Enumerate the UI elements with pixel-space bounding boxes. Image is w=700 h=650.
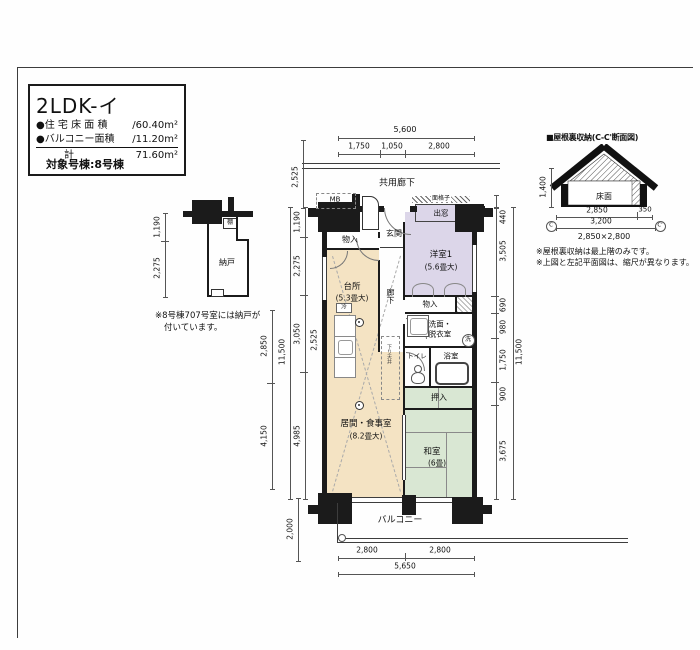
dim-line: [549, 168, 554, 208]
attic-size: 2,850×2,800: [578, 233, 631, 241]
attic-title: ■屋根裏収納(C-C'断面図): [546, 132, 638, 143]
wall-closet-right: [455, 295, 457, 314]
wall-left: [322, 230, 327, 257]
wall-toilet-bath: [429, 348, 431, 388]
attic-note-2: ※上図と左記平面図は、縮尺が異なります。: [536, 257, 694, 268]
storage-wall-rightside: [247, 239, 249, 297]
attic-roof-section: 床面: [548, 144, 660, 210]
shelf-label: 棚: [227, 220, 233, 226]
dim-left-corridor: 2,525: [291, 166, 299, 187]
dim-bottom-seg2: 2,800: [429, 546, 450, 554]
kitchen-label: 台所: [343, 283, 360, 292]
wall-closet-washroom: [405, 312, 472, 314]
closet-fold-door: [412, 283, 434, 297]
counter-divider: [334, 336, 356, 337]
dim-line: [303, 207, 308, 500]
dim-bottom-total: 5,650: [394, 562, 415, 570]
genkan-label: 玄関: [386, 230, 402, 238]
dim-left-seg1: 1,190: [293, 211, 301, 232]
toilet-label: トイレ: [407, 353, 427, 360]
dim-top-total: 5,600: [394, 126, 417, 134]
column-nub: [484, 208, 493, 217]
balcony-area-value: /11.20m²: [132, 133, 178, 147]
dim-line: [338, 136, 475, 141]
dimension-tick: [491, 338, 499, 339]
dimension-tick: [300, 372, 308, 373]
balcony-label: バルコニー: [378, 517, 423, 526]
dim-left-seg3: 3,050: [293, 323, 301, 344]
storage-room-label: 納戸: [219, 259, 235, 267]
dim-line: [556, 226, 656, 231]
meter-box-label: MB: [330, 197, 341, 204]
gas-outlet-mark: [355, 401, 364, 410]
kitchen-window: [322, 257, 323, 300]
genkan-step: [380, 247, 403, 248]
plan-name: 2LDK-イ: [36, 90, 178, 119]
closet-hatch-area: [457, 297, 472, 312]
dimension-tick: [405, 150, 406, 158]
dim-right-seg5: 900: [499, 387, 507, 401]
storage-wall-top: [183, 211, 253, 217]
dim-balcony-depth: 2,000: [286, 518, 294, 539]
dim-left-total: 11,500: [278, 339, 286, 365]
dim-left-seg2: 2,275: [293, 255, 301, 276]
fridge-label: 冷: [341, 305, 347, 311]
dim-right-seg4: 1,750: [499, 349, 507, 370]
target-building-label: 対象号棟:8号棟: [46, 156, 124, 172]
column-nub: [308, 208, 318, 217]
drain-mark: [338, 534, 346, 542]
dimension-tick: [161, 241, 169, 242]
wall-left: [322, 300, 327, 493]
dimension-tick: [300, 237, 308, 238]
page-border-left: [17, 67, 18, 638]
bedroom-label: 洋室1: [430, 251, 452, 260]
dimension-tick: [405, 553, 406, 561]
balcony-rail: [337, 538, 628, 539]
wall-living-east: [403, 352, 405, 415]
kitchen-size-label: (5.3畳大): [336, 294, 369, 302]
wall-top: [410, 206, 417, 212]
dim-line: [296, 498, 301, 562]
bay-window-label: 出窓: [434, 209, 449, 217]
balcony-rail: [337, 542, 628, 543]
column-bottom-right: [452, 497, 483, 524]
sliding-door: [402, 415, 403, 480]
dim-right-total: 11,500: [515, 339, 523, 365]
closet-fold-door: [444, 283, 466, 297]
dimension-tick: [637, 212, 638, 220]
kitchen-window: [326, 257, 327, 300]
dropped-ceiling-label: 下り天井: [386, 344, 391, 364]
dim-line: [338, 572, 475, 577]
wall-oshiire-washitsu: [405, 408, 472, 410]
attic-w2: 350: [638, 207, 651, 214]
monoire-top-label: 物入: [342, 236, 358, 244]
wall-kitchen-hall: [378, 260, 380, 352]
gas-outlet-mark: [355, 318, 364, 327]
corridor-line: [302, 168, 500, 169]
dim-left-seg4: 4,985: [293, 425, 301, 446]
dimension-tick: [267, 383, 275, 384]
toilet-body: [411, 372, 425, 384]
attic-floor-label: 床面: [596, 191, 612, 201]
dim-right-seg1: 3,505: [499, 240, 507, 261]
section-mark-c2-label: C': [657, 223, 662, 229]
storage-dim-line: [163, 213, 168, 298]
corridor-line: [302, 163, 500, 164]
dim-top-seg1: 1,750: [348, 142, 369, 150]
attic-note-1: ※屋根裏収納は最上階のみです。: [536, 246, 654, 257]
hallway-label: 廊下: [386, 288, 394, 304]
attic-w1: 2,850: [586, 206, 607, 214]
column-bottom-left: [318, 493, 352, 524]
storage-note-line2: 付いています。: [164, 321, 222, 333]
floorplan-sheet: 2LDK-イ ●住 宅 床 面 積/60.40m² ●バルコニー面積/11.20…: [0, 0, 700, 650]
wall-washroom-bottom: [405, 346, 472, 348]
living-label: 居間・食事室: [340, 420, 391, 429]
attic-hatch-right: [632, 181, 640, 205]
dimension-tick: [491, 382, 499, 383]
wall-bath-oshiire: [405, 386, 472, 388]
wall-right: [472, 230, 477, 245]
bedroom-window: [476, 245, 477, 292]
section-mark-c-label: C: [549, 223, 553, 229]
attic-height: 1,400: [539, 176, 547, 197]
dim-line: [301, 140, 306, 209]
dimension-tick: [491, 405, 499, 406]
counter-divider: [334, 357, 356, 358]
wall-living-east: [403, 480, 405, 497]
corridor-label: 共用廊下: [379, 180, 415, 189]
living-size-label: (8.2畳大): [350, 432, 383, 440]
total-area-value: 71.60m²: [136, 149, 178, 163]
dim-line: [270, 310, 275, 490]
storage-floor-hatch-box: [211, 289, 224, 297]
washbasin-bowl: [410, 318, 428, 335]
dim-line: [338, 556, 475, 561]
dim-top-seg3: 2,800: [428, 142, 449, 150]
washer-mark-label: 洗: [465, 337, 471, 343]
window-grate-label: 面格子: [431, 196, 451, 202]
dimension-tick: [300, 295, 308, 296]
storage-wall-rightupper: [236, 217, 238, 240]
dim-right-seg6: 3,675: [499, 440, 507, 461]
attic-w-total: 3,200: [590, 217, 611, 225]
dim-bottom-seg1: 2,800: [356, 546, 377, 554]
washitsu-size-label: (6畳): [428, 459, 446, 467]
column-top-right: [455, 204, 484, 232]
dim-inner: 2,525: [310, 329, 318, 350]
bath-label: 浴室: [444, 352, 459, 360]
storage-dim-lower: 2,275: [153, 257, 161, 278]
dimension-tick: [491, 313, 499, 314]
dim-line: [288, 207, 293, 500]
balcony-area-label: ●バルコニー面積: [36, 133, 115, 147]
tatami-line: [446, 432, 447, 497]
dim-bay: 440: [499, 210, 507, 224]
floor-area-value: /60.40m²: [132, 119, 178, 133]
washroom-label-1: 洗面・: [429, 320, 452, 328]
bathtub: [435, 362, 469, 385]
washroom-label-2: 脱衣室: [429, 330, 452, 338]
storage-wall-leftside: [207, 217, 209, 297]
dim-outer2: 4,150: [260, 425, 268, 446]
dimension-tick: [491, 296, 499, 297]
wall-bottom-stub: [402, 495, 416, 515]
tatami-line: [405, 432, 472, 433]
bedroom-window: [472, 245, 473, 292]
column-nub: [308, 505, 318, 514]
sink: [338, 340, 353, 355]
page-border-top: [17, 67, 693, 68]
dim-outer1: 2,850: [260, 335, 268, 356]
dimension-tick: [380, 150, 381, 158]
washitsu-label: 和室: [423, 448, 440, 457]
storage-dim-upper: 1,190: [153, 216, 161, 237]
column-nub: [483, 505, 492, 514]
monoire-mid-label: 物入: [423, 300, 438, 308]
floor-area-label: ●住 宅 床 面 積: [36, 119, 107, 133]
wall-right: [472, 292, 477, 497]
storage-note-line1: ※8号棟707号室には納戸が: [155, 309, 260, 321]
dim-right-seg3: 980: [499, 320, 507, 334]
pipe-shaft: [362, 196, 379, 230]
dim-right-seg2: 690: [499, 298, 507, 312]
bedroom-size-label: (5.6畳大): [425, 263, 458, 271]
oshiire-label: 押入: [431, 394, 447, 402]
storage-wall-stub: [228, 197, 234, 212]
dim-line: [338, 152, 475, 157]
dim-top-seg2: 1,050: [381, 142, 402, 150]
sliding-door: [405, 415, 406, 480]
